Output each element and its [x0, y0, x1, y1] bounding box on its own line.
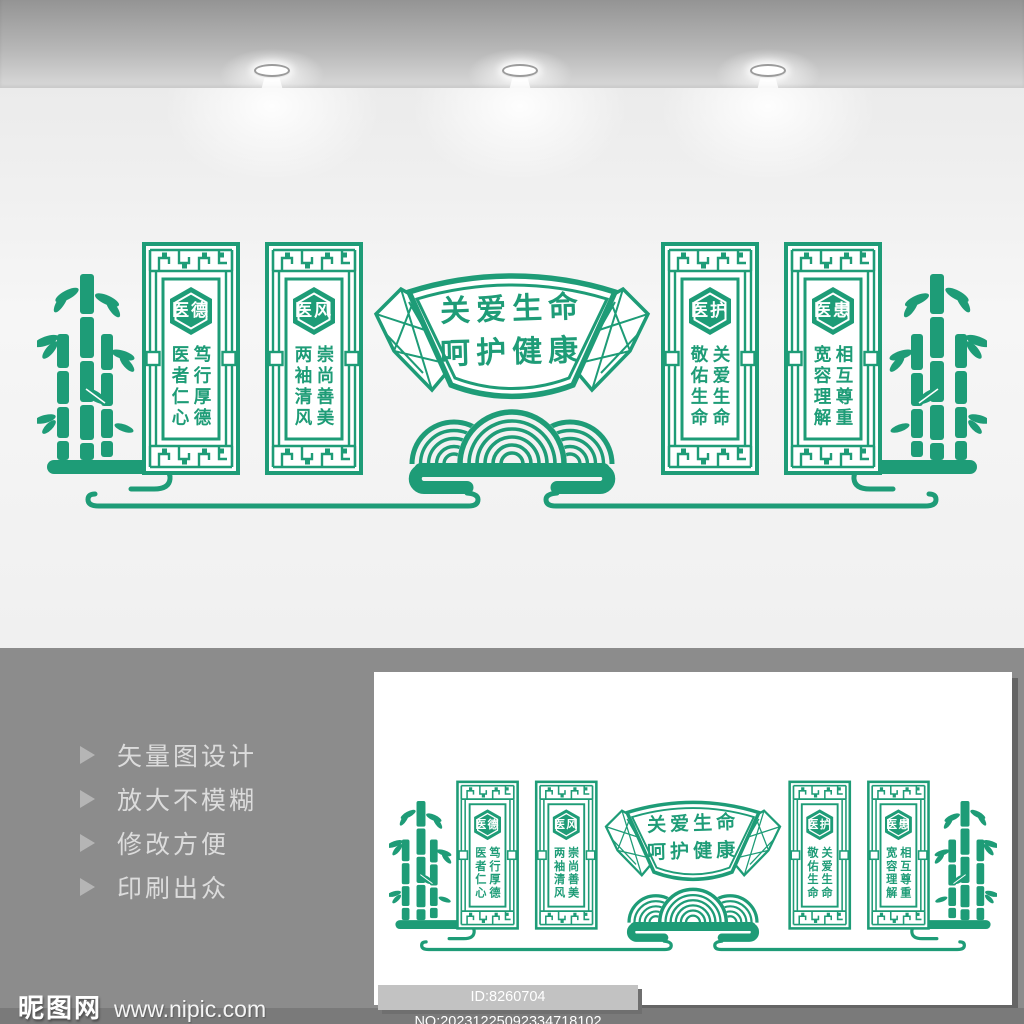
spotlight-icon [502, 64, 538, 77]
panel-phrase-left: 医者仁心 [169, 345, 191, 437]
culture-wall-design: 关爱生命 呵护健康 医德 笃行厚德 医者仁心 医风 崇尚善美 两袖清风 医护 关… [389, 778, 997, 957]
triangle-bullet-icon [80, 746, 95, 764]
panel-phrase-left: 宽容理解 [884, 846, 898, 905]
image-id-badge: ID:8260704 NO:20231225092334718102 [378, 985, 638, 1010]
spotlight-icon [254, 64, 290, 77]
feature-item: 放大不模糊 [80, 785, 257, 812]
feature-label: 修改方便 [117, 825, 229, 861]
panel-phrase-left: 敬佑生命 [688, 345, 710, 437]
panel-badge-text: 医患 [882, 817, 914, 832]
panel-phrase-left: 两袖清风 [292, 345, 314, 437]
panel-phrase-right: 笃行厚德 [488, 846, 502, 905]
feature-label: 印刷出众 [117, 869, 229, 905]
site-url: www.nipic.com [114, 996, 266, 1022]
panel-phrase-right: 关爱生命 [820, 846, 834, 905]
fan-title-line2: 呵护健康 [609, 833, 776, 866]
panel-badge-text: 医护 [685, 299, 735, 323]
panel-badge-text: 医德 [472, 817, 504, 832]
triangle-bullet-icon [80, 878, 95, 896]
panel-phrase-left: 两袖清风 [552, 846, 566, 905]
feature-item: 矢量图设计 [80, 741, 257, 768]
features-list: 矢量图设计 放大不模糊 修改方便 印刷出众 [80, 741, 257, 917]
panel-badge-text: 医风 [550, 817, 582, 832]
preview-card: 关爱生命 呵护健康 医德 笃行厚德 医者仁心 医风 崇尚善美 两袖清风 医护 关… [374, 672, 1012, 1005]
wall: 关爱生命 呵护健康 医德 笃行厚德 医者仁心 医风 崇尚善美 两袖清风 医护 关… [0, 88, 1024, 648]
panel-badge-text: 医患 [808, 299, 858, 323]
brand-watermark: 昵图网www.nipic.com [18, 988, 266, 1024]
panel-phrase-right: 崇尚善美 [566, 846, 580, 905]
panel-phrase-right: 关爱生命 [710, 345, 732, 437]
triangle-bullet-icon [80, 790, 95, 808]
poster-root: 关爱生命 呵护健康 医德 笃行厚德 医者仁心 医风 崇尚善美 两袖清风 医护 关… [0, 0, 1024, 1024]
panel-phrase-left: 医者仁心 [473, 846, 487, 905]
panel-badge-text: 医德 [166, 299, 216, 323]
panel-phrase-left: 宽容理解 [811, 345, 833, 437]
panel-phrase-left: 敬佑生命 [806, 846, 820, 905]
fan-title-line2: 呵护健康 [381, 324, 642, 375]
preview-design: 关爱生命 呵护健康 医德 笃行厚德 医者仁心 医风 崇尚善美 两袖清风 医护 关… [389, 778, 997, 957]
panel-phrase-right: 崇尚善美 [314, 345, 336, 437]
panel-phrase-right: 相互尊重 [898, 846, 912, 905]
panel-phrase-right: 相互尊重 [833, 345, 855, 437]
feature-label: 放大不模糊 [117, 781, 257, 817]
feature-label: 矢量图设计 [117, 737, 257, 773]
info-section: 矢量图设计 放大不模糊 修改方便 印刷出众 [0, 648, 1024, 1024]
feature-item: 修改方便 [80, 829, 257, 856]
panel-badge-text: 医护 [804, 817, 836, 832]
panel-badge-text: 医风 [289, 299, 339, 323]
site-logo: 昵图网 [18, 993, 102, 1023]
spotlight-icon [750, 64, 786, 77]
panel-phrase-right: 笃行厚德 [191, 345, 213, 437]
feature-item: 印刷出众 [80, 873, 257, 900]
culture-wall-design: 关爱生命 呵护健康 医德 笃行厚德 医者仁心 医风 崇尚善美 两袖清风 医护 关… [37, 238, 987, 518]
triangle-bullet-icon [80, 834, 95, 852]
